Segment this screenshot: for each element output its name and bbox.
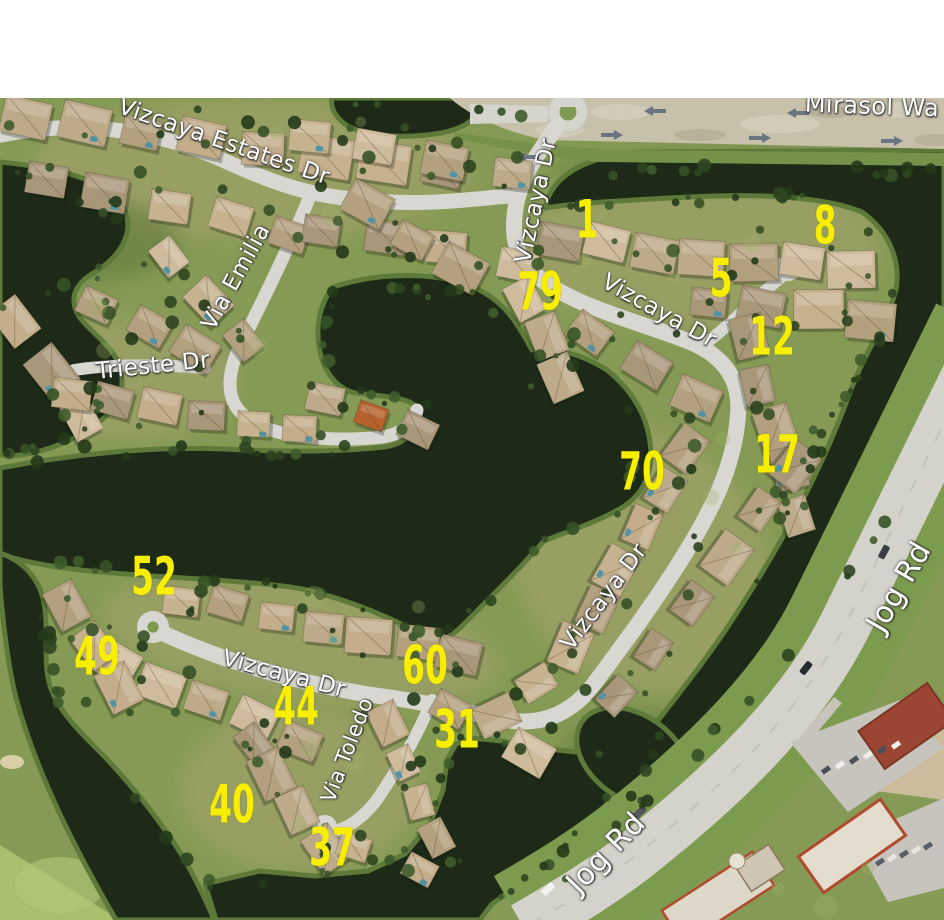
top-white-margin bbox=[0, 0, 944, 98]
aerial-imagery bbox=[0, 0, 944, 920]
aerial-map[interactable]: Vizcaya Estates DrMirasol WaVizcaya DrVi… bbox=[0, 0, 944, 920]
screenshot-root: Vizcaya Estates DrMirasol WaVizcaya DrVi… bbox=[0, 0, 944, 920]
